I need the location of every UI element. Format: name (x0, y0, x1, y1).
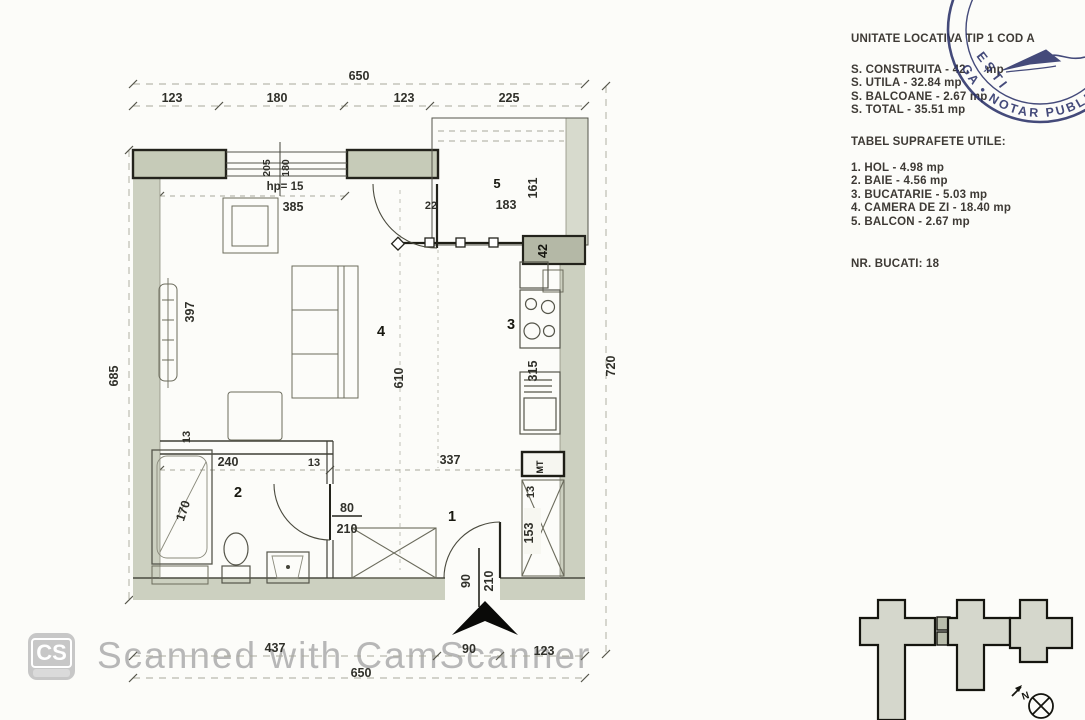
entrance-arrow-icon (452, 601, 518, 635)
dim-315: 315 (526, 361, 540, 382)
bath-door-height: 210 (337, 522, 358, 536)
dim-13-hall: 13 (525, 486, 537, 498)
dim-top-b: 180 (267, 91, 288, 105)
kitchen-fixtures (520, 262, 560, 434)
stove (520, 290, 560, 348)
dim-22: 22 (425, 200, 437, 212)
dim-153: 153 (522, 523, 536, 544)
bath-door-arc (274, 484, 330, 540)
dim-bottom-b: 90 (462, 642, 476, 656)
balcony (392, 118, 588, 292)
dim-bottom-total: 650 (351, 666, 372, 680)
coffee-table (228, 392, 282, 440)
floor-plan-drawing: 650 123 180 123 225 205 180 hp= 15 385 6… (0, 0, 1085, 720)
room-number-bath: 2 (234, 485, 242, 501)
dim-385: 385 (283, 200, 304, 214)
dim-183: 183 (496, 198, 517, 212)
dim-240: 240 (218, 455, 239, 469)
dim-left-total: 685 (107, 366, 121, 387)
entry-door-width: 90 (459, 574, 473, 588)
room-number-living: 4 (377, 324, 385, 340)
sofa (292, 266, 358, 398)
room-number-hall: 1 (448, 509, 456, 525)
dim-170: 170 (173, 499, 193, 523)
entry-door-height: 210 (482, 571, 496, 592)
dim-bottom-c: 123 (534, 644, 555, 658)
dim-397: 397 (183, 302, 197, 323)
compass-label: N (1021, 690, 1031, 703)
room-number-kitchen: 3 (507, 317, 515, 333)
meter-label: MT (535, 460, 545, 473)
room-numbers: 1 2 3 4 5 (234, 176, 515, 525)
dim-right-total: 720 (604, 356, 618, 377)
scanned-floor-plan-page: CS Scanned with CamScanner UNITATE LOCAT… (0, 0, 1085, 720)
dim-42: 42 (536, 244, 550, 258)
dim-top-a: 123 (162, 91, 183, 105)
dim-top-d: 225 (499, 91, 520, 105)
bath-door-width: 80 (340, 501, 354, 515)
dim-610: 610 (392, 368, 406, 389)
dim-bottom-a: 437 (265, 641, 286, 655)
dim-13-bath: 13 (308, 457, 320, 469)
dim-top-c: 123 (394, 91, 415, 105)
room-number-balcony: 5 (493, 176, 500, 191)
stamp-signature (1003, 50, 1085, 72)
wall-stub-42 (523, 236, 585, 264)
dim-top-total: 650 (349, 69, 370, 83)
dim-hp: hp= 15 (267, 181, 304, 193)
notary-stamp-icon: GA • NOTAR PUBLIC • A EȘTI (948, 0, 1085, 122)
dim-161: 161 (526, 178, 540, 199)
site-plan: N (860, 600, 1072, 720)
dim-13-bath-top: 13 (181, 431, 193, 443)
dim-window-205: 205 (261, 159, 273, 177)
toilet (224, 533, 248, 565)
dim-337: 337 (440, 453, 461, 467)
dim-window-180: 180 (280, 159, 292, 177)
compass-icon (1012, 685, 1053, 718)
